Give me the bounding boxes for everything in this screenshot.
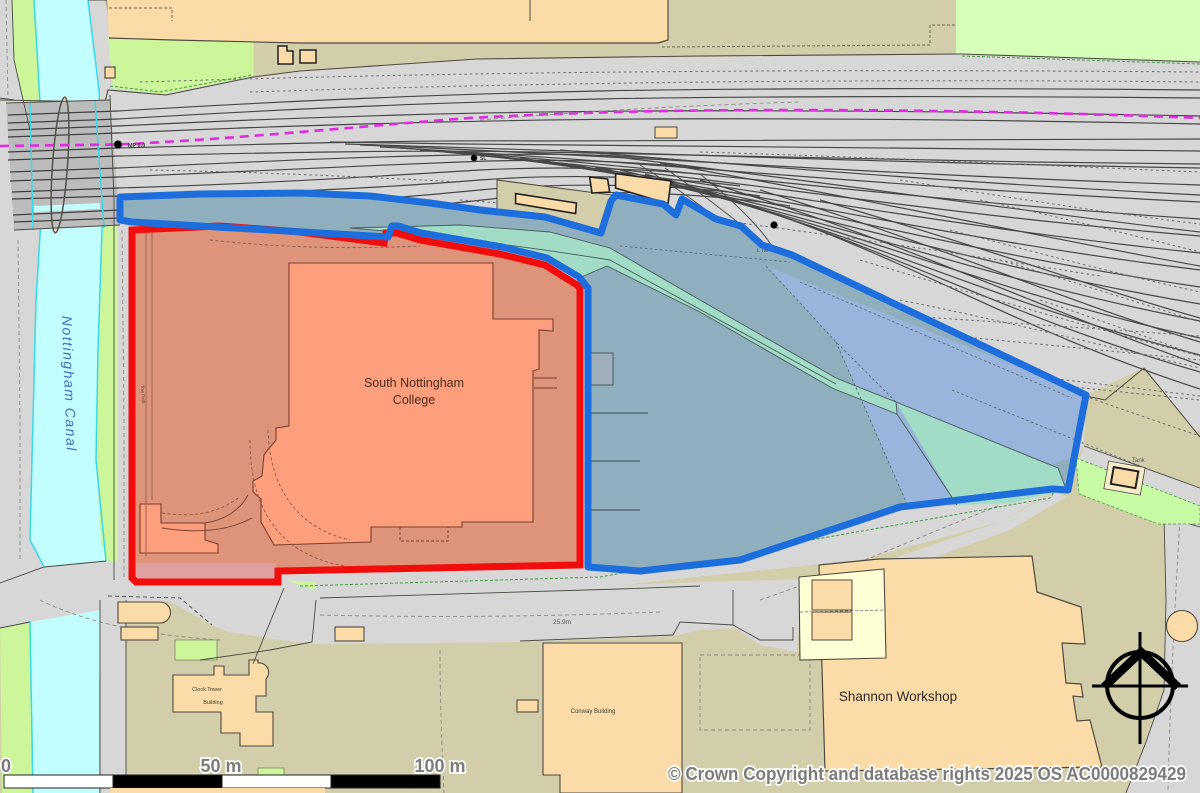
svg-text:Building: Building bbox=[203, 700, 223, 706]
svg-text:Shannon Workshop: Shannon Workshop bbox=[839, 689, 957, 704]
svg-text:50 m: 50 m bbox=[200, 756, 241, 776]
svg-text:Clock Tower: Clock Tower bbox=[192, 687, 222, 693]
svg-text:Tow Path: Tow Path bbox=[140, 385, 146, 404]
svg-text:MP 0.0: MP 0.0 bbox=[128, 143, 145, 149]
svg-text:© Crown Copyright and database: © Crown Copyright and database rights 20… bbox=[668, 764, 1186, 784]
svg-text:25.9m: 25.9m bbox=[553, 619, 571, 626]
svg-text:0: 0 bbox=[1, 756, 11, 776]
svg-text:South Nottingham: South Nottingham bbox=[364, 376, 464, 390]
svg-text:College: College bbox=[393, 393, 435, 407]
svg-text:Conway Building: Conway Building bbox=[571, 709, 616, 715]
svg-text:100 m: 100 m bbox=[414, 756, 465, 776]
svg-text:SL: SL bbox=[480, 156, 486, 162]
